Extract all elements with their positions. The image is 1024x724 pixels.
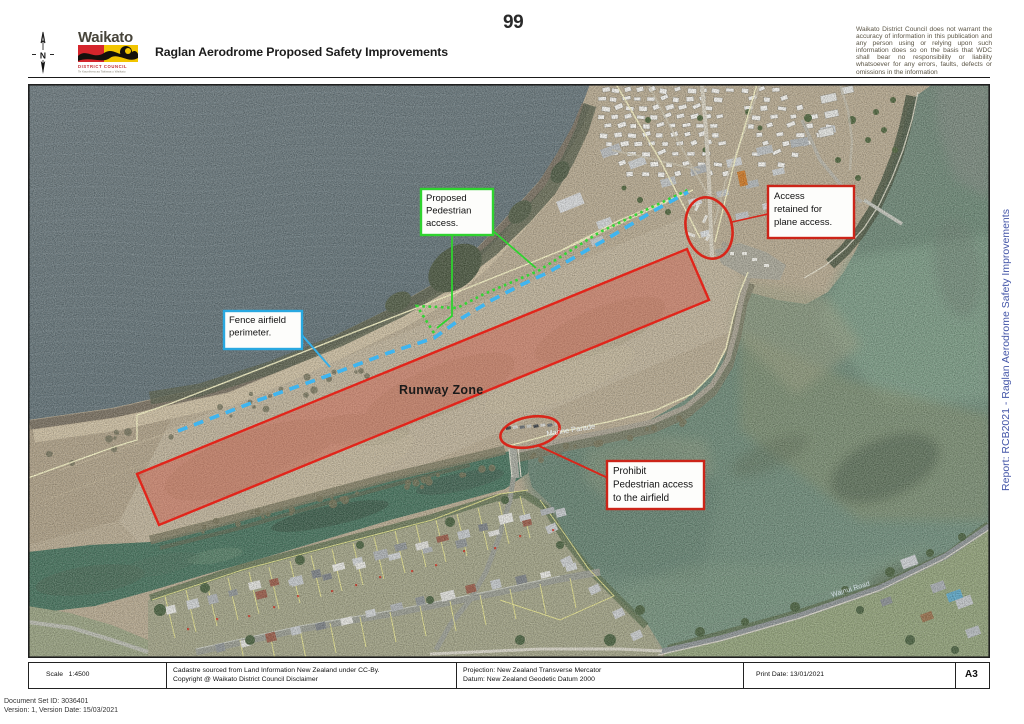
svg-text:retained for: retained for [774, 204, 822, 215]
svg-text:Proposed: Proposed [426, 193, 467, 204]
svg-text:Prohibit: Prohibit [613, 466, 646, 477]
svg-text:Fence airfield: Fence airfield [229, 315, 286, 326]
svg-text:DISTRICT COUNCIL: DISTRICT COUNCIL [78, 64, 127, 69]
svg-text:plane access.: plane access. [774, 217, 832, 228]
svg-text:Pedestrian access: Pedestrian access [613, 480, 693, 491]
svg-text:Te Kaunihera aa Takiwaa o Waik: Te Kaunihera aa Takiwaa o Waikato [78, 70, 126, 74]
svg-text:perimeter.: perimeter. [229, 327, 271, 338]
svg-text:Waikato: Waikato [78, 29, 133, 46]
svg-text:to the airfield: to the airfield [613, 493, 669, 504]
svg-text:Pedestrian: Pedestrian [426, 205, 471, 216]
svg-text:Access: Access [774, 191, 805, 202]
svg-text:N: N [40, 51, 46, 61]
svg-text:Runway Zone: Runway Zone [399, 383, 484, 397]
svg-text:access.: access. [426, 218, 458, 229]
